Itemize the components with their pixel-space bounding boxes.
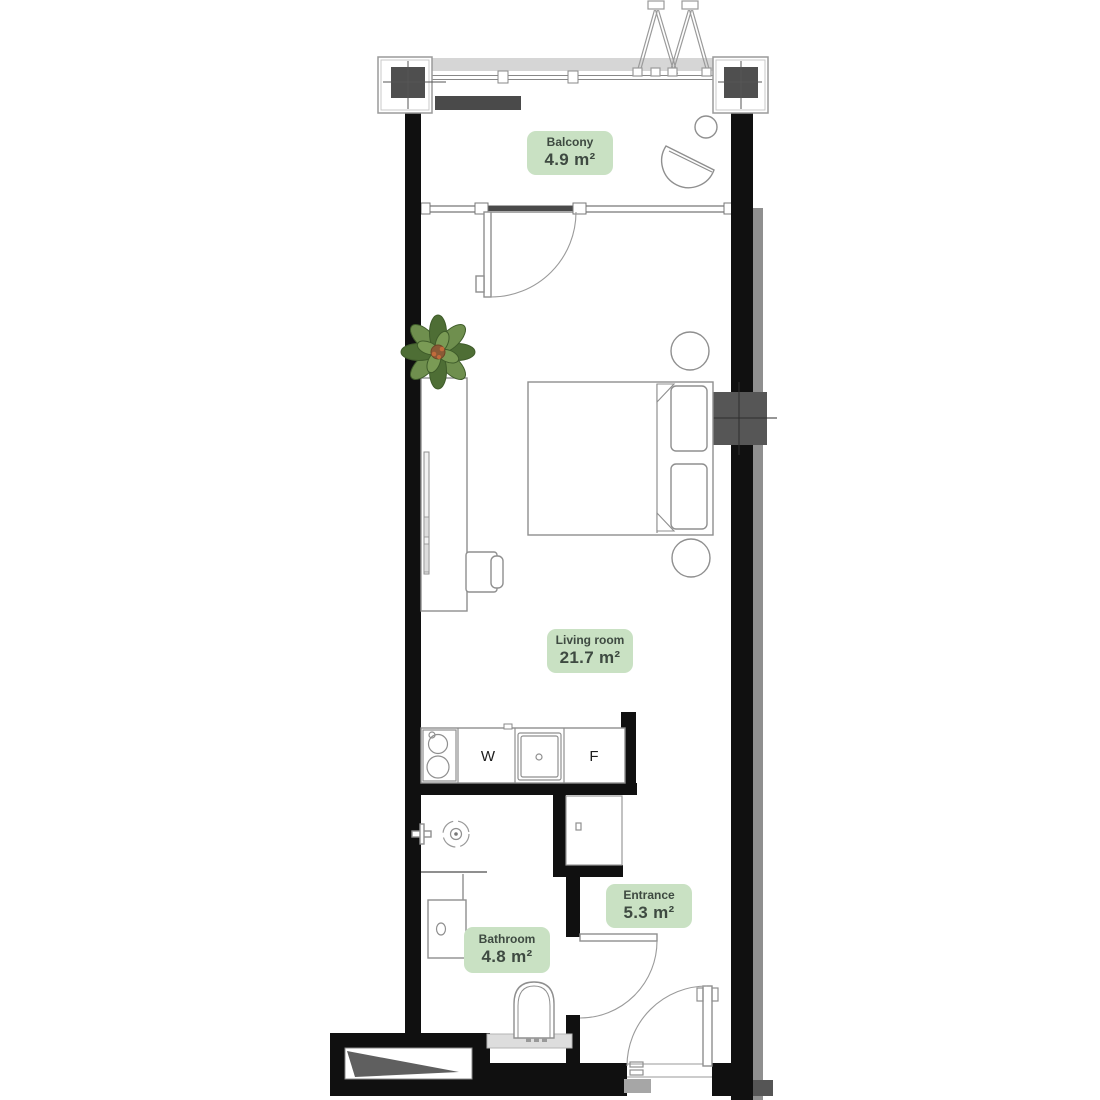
room-name: Entrance <box>623 889 674 903</box>
side-table <box>695 116 717 138</box>
shower-valve <box>420 824 424 844</box>
room-label-entrance: Entrance 5.3 m² <box>606 884 692 928</box>
desk-chair <box>466 552 503 592</box>
column-marker-icon <box>713 57 768 113</box>
nightstand <box>671 332 709 370</box>
room-name: Living room <box>556 634 625 648</box>
balcony-outer-rail <box>382 58 754 83</box>
balcony-glazing <box>421 203 733 214</box>
nightstand <box>672 539 710 577</box>
shower-head-icon <box>443 821 469 847</box>
room-area: 4.8 m² <box>482 947 533 967</box>
balcony-door <box>476 212 576 297</box>
bed <box>528 382 713 535</box>
shaft-opening <box>345 1048 472 1079</box>
room-name: Bathroom <box>479 933 536 947</box>
door-swing-icon <box>627 986 707 1066</box>
room-area: 4.9 m² <box>545 150 596 170</box>
fridge-label: F <box>581 748 607 765</box>
door-swing-icon <box>491 212 576 297</box>
shower-area <box>412 821 487 902</box>
vanity-sink <box>428 900 466 958</box>
armchair-icon <box>662 116 717 188</box>
entrance-closet <box>566 796 622 865</box>
room-label-living-room: Living room 21.7 m² <box>547 629 633 673</box>
doormat <box>624 1079 651 1093</box>
entrance-door <box>624 986 718 1093</box>
room-label-bathroom: Bathroom 4.8 m² <box>464 927 550 973</box>
desk <box>421 378 467 611</box>
washer-label: W <box>475 748 501 765</box>
room-label-balcony: Balcony 4.9 m² <box>527 131 613 175</box>
pillow <box>671 464 707 529</box>
toilet-icon <box>487 982 572 1048</box>
door-swing-icon <box>580 941 657 1018</box>
room-area: 21.7 m² <box>560 648 621 668</box>
bathroom-door <box>580 934 657 1018</box>
room-area: 5.3 m² <box>624 903 675 923</box>
plant-icon <box>401 315 475 389</box>
floor-plan: Balcony 4.9 m² Living room 21.7 m² Entra… <box>0 0 1100 1100</box>
exterior-walls <box>330 110 773 1100</box>
balcony-planter <box>435 96 521 110</box>
room-name: Balcony <box>547 136 594 150</box>
pillow <box>671 386 707 451</box>
